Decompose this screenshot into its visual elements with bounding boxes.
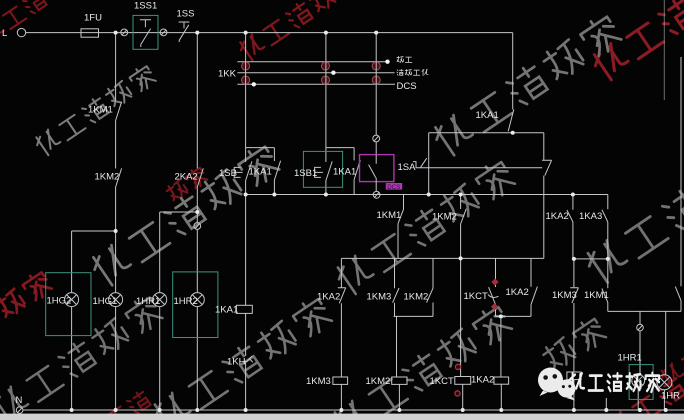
svg-text:1HR1: 1HR1: [136, 296, 160, 307]
svg-text:1KH: 1KH: [227, 357, 246, 368]
svg-text:1KM3: 1KM3: [306, 376, 331, 387]
svg-text:1KM2: 1KM2: [432, 212, 457, 223]
svg-text:1HR1: 1HR1: [618, 353, 642, 364]
svg-text:1FU: 1FU: [84, 13, 102, 24]
svg-text:1KM2: 1KM2: [366, 376, 391, 387]
svg-text:1KA1: 1KA1: [249, 167, 272, 178]
svg-text:1KA2: 1KA2: [471, 375, 494, 386]
svg-text:1KA2: 1KA2: [317, 292, 340, 303]
svg-text:L: L: [2, 28, 7, 39]
svg-text:N: N: [16, 395, 23, 406]
svg-text:1SS1: 1SS1: [134, 1, 157, 12]
svg-text:1KCT: 1KCT: [464, 291, 488, 302]
svg-text:DCS: DCS: [387, 184, 400, 191]
svg-text:1SA: 1SA: [398, 162, 417, 173]
svg-text:1KM1: 1KM1: [88, 105, 113, 116]
svg-text:1HR: 1HR: [661, 391, 680, 402]
svg-text:1KA1: 1KA1: [215, 305, 238, 316]
svg-text:1HR2: 1HR2: [174, 296, 198, 307]
svg-text:1SB: 1SB: [219, 168, 237, 179]
svg-text:1KA2: 1KA2: [546, 211, 569, 222]
svg-text:1KM2: 1KM2: [95, 172, 120, 183]
svg-text:1KK: 1KK: [218, 69, 237, 80]
svg-text:1KA3: 1KA3: [579, 211, 602, 222]
svg-text:2KA2: 2KA2: [175, 172, 198, 183]
svg-text:1SS: 1SS: [177, 9, 195, 20]
svg-text:1KA2: 1KA2: [506, 287, 529, 298]
svg-text:1KM1: 1KM1: [584, 290, 609, 301]
svg-text:1KM3: 1KM3: [367, 292, 392, 303]
svg-text:1HG2: 1HG2: [47, 296, 72, 307]
svg-text:1HG1: 1HG1: [93, 296, 118, 307]
svg-text:DCS: DCS: [397, 81, 417, 92]
svg-text:1KA1: 1KA1: [476, 110, 499, 121]
svg-text:1SB1: 1SB1: [294, 168, 317, 179]
svg-text:1KM3: 1KM3: [552, 290, 577, 301]
svg-text:1KA1: 1KA1: [333, 167, 356, 178]
svg-text:1KM1: 1KM1: [377, 210, 402, 221]
svg-text:1KM2: 1KM2: [404, 292, 429, 303]
svg-text:1KCT: 1KCT: [430, 376, 454, 387]
